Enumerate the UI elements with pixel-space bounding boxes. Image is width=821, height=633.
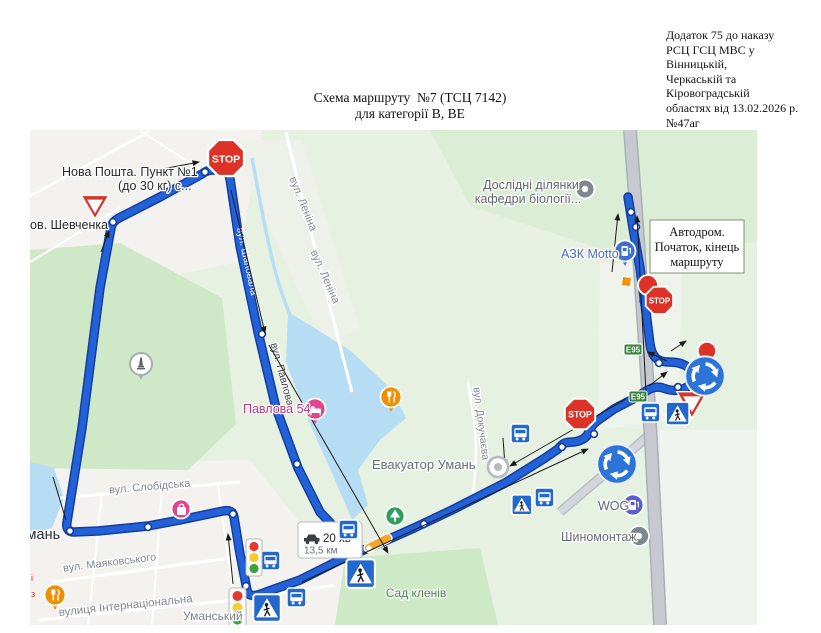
roundabout-sign-icon <box>685 356 724 395</box>
e95-route-shield: E95 <box>629 391 647 402</box>
document-annotation: Додаток 75 до наказу РСЦ ГСЦ МВС у Вінни… <box>666 28 818 130</box>
poi-label-umanskyi: Уманський <box>183 609 243 623</box>
route-waypoint-dot <box>110 219 117 226</box>
route-waypoint-dot <box>628 209 635 216</box>
autodrom-callout: Автодром. Початок, кінець маршруту <box>650 220 744 273</box>
poi-label-nova-poshta: Нова Пошта. Пункт №1 <box>62 165 198 179</box>
route-waypoint-dot <box>633 224 640 231</box>
poi-label-evakuator: Евакуатор Умань <box>372 457 476 472</box>
poi-label-sad-kleniv: Сад кленів <box>386 586 447 600</box>
route-waypoint-dot <box>294 461 301 468</box>
stop-sign-text: STOP <box>649 297 670 306</box>
title-line-2: для категорії В, ВЕ <box>210 106 610 122</box>
edge-label-fragment: і <box>31 573 33 583</box>
callout-line-2: Початок, кінець <box>655 240 740 254</box>
callout-line-1: Автодром. <box>669 225 724 239</box>
traffic-light-icon <box>246 539 262 576</box>
stop-sign-text: STOP <box>568 410 592 420</box>
poi-label-pavlova54: Павлова 54 <box>243 402 311 416</box>
annotation-line: Додаток 75 до наказу <box>666 28 818 43</box>
route-map-canvas: вул. Шаповала вул. Павлова <box>30 130 757 625</box>
stop-sign-icon: STOP <box>646 287 673 314</box>
route-waypoint-dot <box>559 444 566 451</box>
route-waypoint-dot <box>67 528 74 535</box>
poi-label-doslidni-2: кафедри біології... <box>475 192 582 206</box>
e95-shield-text: E95 <box>626 346 641 355</box>
poi-label-azk-motto: АЗК Motto <box>561 247 619 261</box>
poi-label-shynomontazh: Шиномонтаж <box>561 530 637 544</box>
pedestrian-crossing-sign-icon <box>346 559 375 588</box>
bus-stop-sign-icon <box>535 488 554 507</box>
route-waypoint-dot <box>145 524 152 531</box>
poi-label-shevchenka: ов. Шевченка <box>30 218 108 232</box>
bus-stop-sign-icon <box>261 551 280 570</box>
callout-line-3: маршруту <box>670 255 724 269</box>
pedestrian-crossing-sign-icon <box>666 402 689 425</box>
roundabout-sign-icon <box>597 444 636 483</box>
title-line-1: Схема маршруту №7 (ТСЦ 7142) <box>210 90 610 106</box>
pedestrian-crossing-sign-icon <box>512 495 532 515</box>
poi-label-wog: WOG <box>598 499 629 513</box>
annotation-line: Черкаській та Кіровоградській <box>666 72 818 101</box>
bus-stop-sign-icon <box>641 403 660 422</box>
bus-stop-sign-icon <box>287 588 306 607</box>
place-donut-icon <box>488 457 508 477</box>
shopping-pin-icon <box>172 500 191 519</box>
bus-stop-sign-icon <box>511 424 530 443</box>
e95-shield-text: E95 <box>631 393 646 402</box>
stop-sign-icon: STOP <box>565 399 595 429</box>
bus-stop-sign-icon <box>339 520 358 539</box>
annotation-line: РСЦ ГСЦ МВС у Вінницькій, <box>666 43 818 72</box>
stop-sign-text: STOP <box>212 154 240 165</box>
annotation-line: областях від 13.02.2026 р. №47аг <box>666 101 818 130</box>
poi-label-uman: Умань <box>30 527 60 543</box>
e95-route-shield: E95 <box>624 344 642 355</box>
route-waypoint-dot <box>591 431 598 438</box>
poi-label-doslidni: Дослідні ділянки <box>483 178 579 192</box>
poi-label-nova-poshta-2: (до 30 кг) с... <box>118 179 192 193</box>
route-waypoint-dot <box>230 511 237 518</box>
page-title: Схема маршруту №7 (ТСЦ 7142) для категор… <box>210 90 610 122</box>
edge-label-fragment: з <box>31 589 35 599</box>
route-orange-square-marker <box>621 276 631 286</box>
park-pin-icon <box>386 507 405 526</box>
route-waypoint-dot <box>202 169 209 176</box>
route-distance: 13,5 км <box>304 546 338 557</box>
route-waypoint-dot <box>675 384 682 391</box>
pedestrian-crossing-sign-icon <box>253 594 281 622</box>
route-waypoint-dot <box>656 360 663 367</box>
stop-sign-icon: STOP <box>208 140 244 176</box>
document-page: Додаток 75 до наказу РСЦ ГСЦ МВС у Вінни… <box>0 0 821 633</box>
